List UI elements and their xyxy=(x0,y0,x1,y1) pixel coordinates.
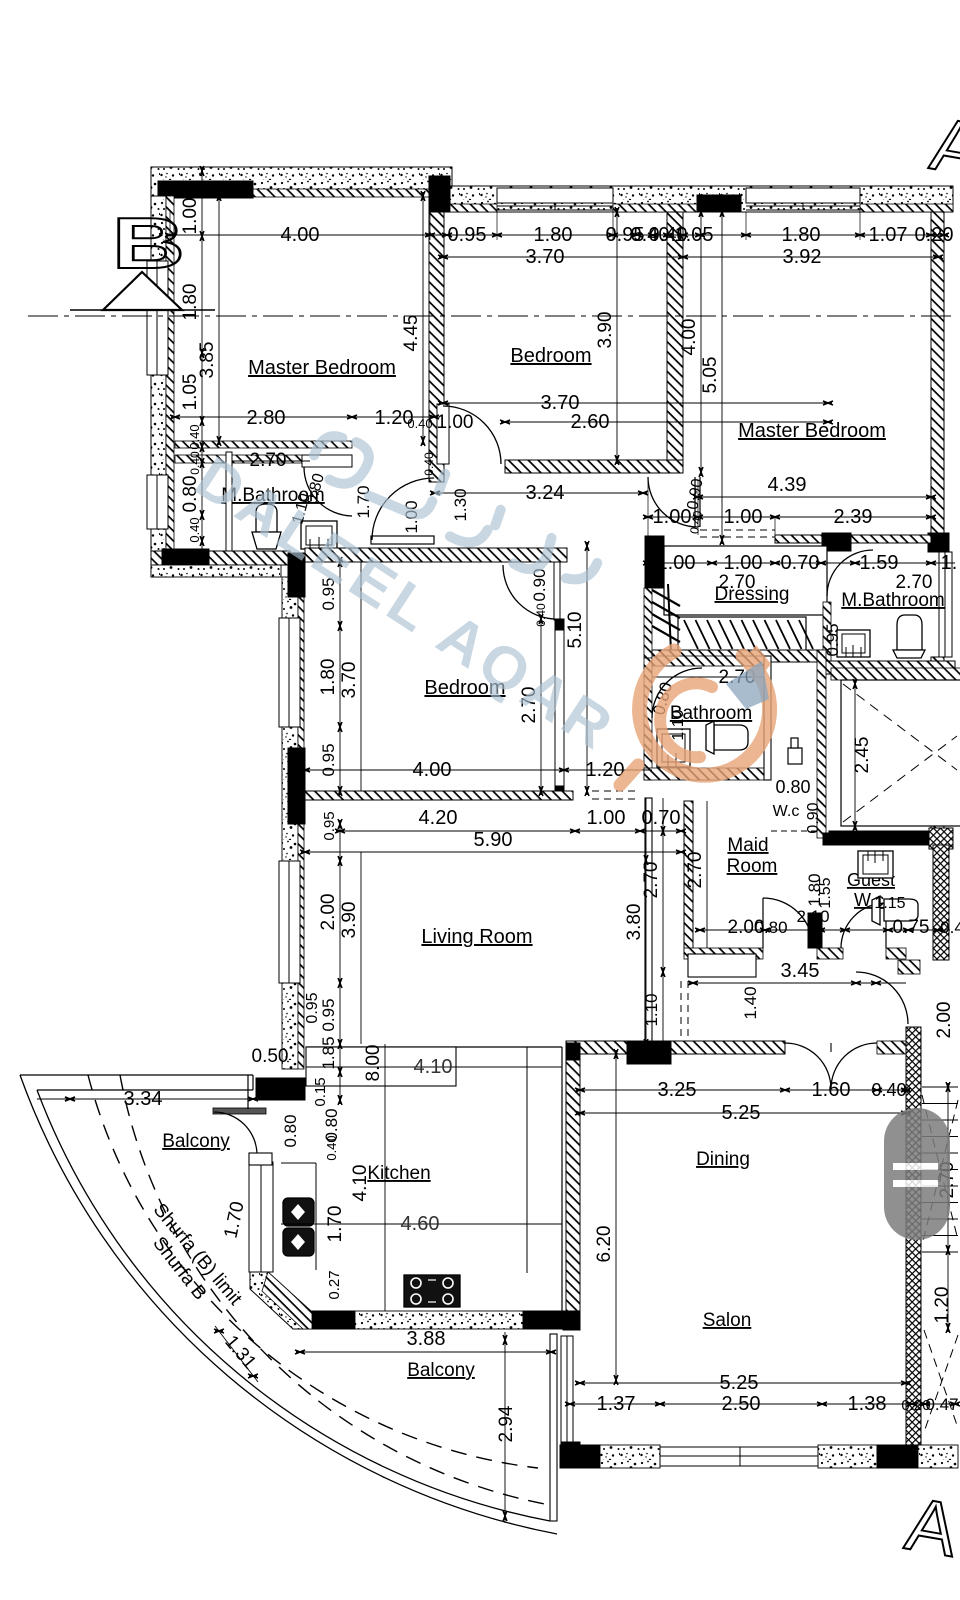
svg-text:1.00: 1.00 xyxy=(724,552,763,574)
svg-text:1.80: 1.80 xyxy=(534,224,573,246)
svg-text:0.47: 0.47 xyxy=(925,1395,958,1414)
svg-text:4.20: 4.20 xyxy=(419,807,458,829)
svg-text:3.70: 3.70 xyxy=(339,662,360,699)
svg-text:3.90: 3.90 xyxy=(595,312,616,349)
svg-text:1.00: 1.00 xyxy=(653,506,692,528)
svg-text:0.50: 0.50 xyxy=(252,1046,289,1067)
svg-text:0.40: 0.40 xyxy=(407,416,432,431)
svg-text:1.00: 1.00 xyxy=(657,552,696,574)
svg-text:3.34: 3.34 xyxy=(124,1088,163,1110)
svg-text:2.70: 2.70 xyxy=(685,852,706,889)
svg-text:B: B xyxy=(112,203,185,284)
svg-text:0.40: 0.40 xyxy=(324,1135,339,1160)
svg-text:0.40: 0.40 xyxy=(422,452,436,476)
svg-text:0.40: 0.40 xyxy=(871,1080,906,1100)
svg-text:1.40: 1.40 xyxy=(741,986,760,1019)
svg-text:1.80: 1.80 xyxy=(318,659,339,696)
svg-text:Maid: Maid xyxy=(727,835,768,856)
svg-text:2.39: 2.39 xyxy=(834,506,873,528)
svg-text:0.15: 0.15 xyxy=(312,1077,329,1106)
svg-text:1.59: 1.59 xyxy=(860,552,899,574)
svg-text:2.10: 2.10 xyxy=(796,907,829,926)
svg-text:2.50: 2.50 xyxy=(722,1393,761,1415)
svg-text:Dining: Dining xyxy=(696,1149,750,1170)
svg-text:W.c: W.c xyxy=(773,803,800,820)
svg-text:1.00: 1.00 xyxy=(180,198,201,235)
svg-text:5.90: 5.90 xyxy=(474,829,513,851)
svg-text:1.15: 1.15 xyxy=(874,895,905,912)
svg-text:1.07: 1.07 xyxy=(869,224,908,246)
svg-text:1.00: 1.00 xyxy=(724,506,763,528)
svg-text:4.39: 4.39 xyxy=(768,474,807,496)
svg-text:3.90: 3.90 xyxy=(339,902,360,939)
svg-text:1.20: 1.20 xyxy=(932,1287,953,1324)
svg-text:4.00: 4.00 xyxy=(413,759,452,781)
svg-text:Bedroom: Bedroom xyxy=(510,345,591,367)
svg-text:5.10: 5.10 xyxy=(565,612,586,649)
svg-text:0.4: 0.4 xyxy=(940,918,960,937)
svg-text:2.70: 2.70 xyxy=(719,572,756,593)
svg-text:5.05: 5.05 xyxy=(700,357,721,394)
svg-text:M.Bathroom: M.Bathroom xyxy=(841,590,944,611)
svg-text:3.88: 3.88 xyxy=(407,1328,446,1350)
svg-text:3.45: 3.45 xyxy=(781,960,820,982)
svg-text:3.70: 3.70 xyxy=(526,246,565,268)
svg-text:4.00: 4.00 xyxy=(679,319,700,356)
svg-text:0.95: 0.95 xyxy=(448,224,487,246)
svg-text:1.70: 1.70 xyxy=(354,485,373,518)
svg-text:4.00: 4.00 xyxy=(281,224,320,246)
svg-text:2.80: 2.80 xyxy=(247,407,286,429)
svg-text:0.95: 0.95 xyxy=(823,623,842,656)
svg-text:0.80: 0.80 xyxy=(754,918,787,937)
svg-text:0.90: 0.90 xyxy=(805,802,822,833)
svg-text:2.45: 2.45 xyxy=(852,737,873,774)
svg-text:1.70: 1.70 xyxy=(325,1206,346,1243)
svg-text:6.20: 6.20 xyxy=(594,1226,615,1263)
svg-text:2.94: 2.94 xyxy=(496,1405,517,1442)
svg-text:3.24: 3.24 xyxy=(526,482,565,504)
svg-text:4.45: 4.45 xyxy=(401,315,422,352)
svg-text:0.40: 0.40 xyxy=(188,451,202,475)
svg-text:2.60: 2.60 xyxy=(571,411,610,433)
svg-text:0.80: 0.80 xyxy=(775,777,810,797)
svg-text:0.40: 0.40 xyxy=(187,517,202,542)
svg-text:1.10: 1.10 xyxy=(642,993,661,1026)
svg-text:Room: Room xyxy=(727,856,778,877)
svg-text:0.70: 0.70 xyxy=(781,552,820,574)
svg-text:1.80: 1.80 xyxy=(782,224,821,246)
svg-text:2.70: 2.70 xyxy=(641,862,662,899)
svg-text:5.25: 5.25 xyxy=(720,1372,759,1394)
svg-text:2.00: 2.00 xyxy=(318,894,339,931)
svg-text:Salon: Salon xyxy=(703,1310,752,1331)
svg-text:Living Room: Living Room xyxy=(421,926,532,948)
svg-text:3.25: 3.25 xyxy=(658,1079,697,1101)
svg-text:1.85: 1.85 xyxy=(319,1036,338,1069)
svg-text:0.20: 0.20 xyxy=(915,224,954,246)
svg-text:1.80: 1.80 xyxy=(180,284,201,321)
svg-text:0.75: 0.75 xyxy=(893,917,930,938)
svg-text:1.37: 1.37 xyxy=(597,1393,636,1415)
svg-text:0.95: 0.95 xyxy=(321,811,338,840)
svg-text:0.80: 0.80 xyxy=(281,1114,300,1147)
svg-text:0.95: 0.95 xyxy=(319,743,338,776)
svg-text:0.40: 0.40 xyxy=(187,424,202,449)
svg-text:2.70: 2.70 xyxy=(896,572,933,593)
svg-text:1.10: 1.10 xyxy=(670,709,687,740)
svg-text:1.05: 1.05 xyxy=(675,224,714,246)
svg-text:Balcony: Balcony xyxy=(407,1360,475,1381)
svg-text:4.10: 4.10 xyxy=(414,1056,453,1078)
svg-text:0.27: 0.27 xyxy=(326,1270,343,1299)
svg-text:1.: 1. xyxy=(941,552,958,574)
svg-text:Master Bedroom: Master Bedroom xyxy=(248,357,396,379)
svg-text:2.00: 2.00 xyxy=(934,1002,955,1039)
svg-text:1.80: 1.80 xyxy=(805,873,824,906)
svg-text:0.70: 0.70 xyxy=(642,807,681,829)
svg-text:Balcony: Balcony xyxy=(162,1131,230,1152)
svg-text:Kitchen: Kitchen xyxy=(367,1163,430,1184)
svg-text:4.60: 4.60 xyxy=(401,1213,440,1235)
svg-text:3.92: 3.92 xyxy=(783,246,822,268)
svg-text:8.00: 8.00 xyxy=(363,1045,384,1082)
svg-text:1.60: 1.60 xyxy=(812,1079,851,1101)
svg-text:1.00: 1.00 xyxy=(587,807,626,829)
svg-text:0.95: 0.95 xyxy=(319,998,338,1031)
svg-text:1.30: 1.30 xyxy=(451,488,470,521)
svg-text:1.38: 1.38 xyxy=(848,1393,887,1415)
svg-text:5.25: 5.25 xyxy=(722,1102,761,1124)
svg-text:1.00: 1.00 xyxy=(437,412,474,433)
svg-text:4.10: 4.10 xyxy=(350,1165,371,1202)
svg-text:0.95: 0.95 xyxy=(304,992,321,1023)
svg-text:3.85: 3.85 xyxy=(197,342,218,379)
svg-text:3.80: 3.80 xyxy=(624,904,645,941)
svg-text:Master Bedroom: Master Bedroom xyxy=(738,420,886,442)
